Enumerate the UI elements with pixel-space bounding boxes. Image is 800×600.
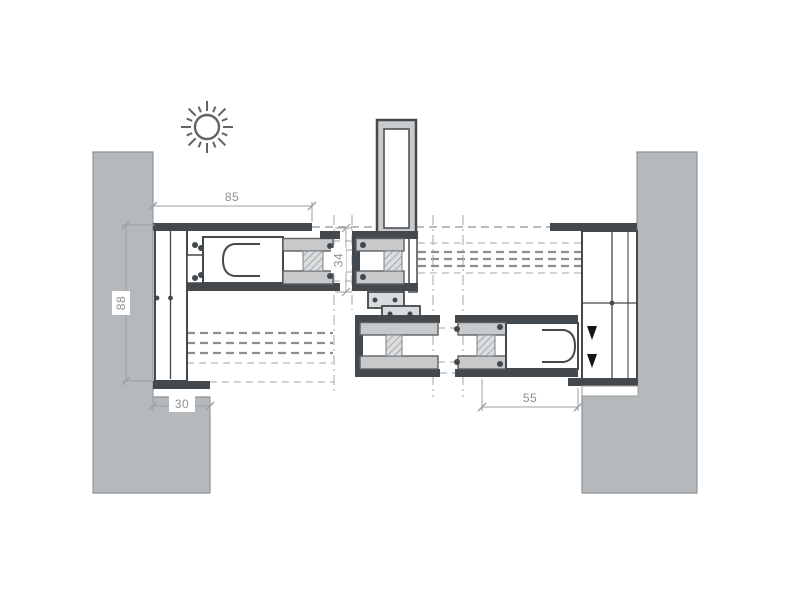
jamb-top-flange (550, 223, 637, 231)
dimension-label-55: 55 (523, 391, 537, 405)
interior-sash-profile (506, 323, 578, 369)
dimension-55: 55 (478, 379, 582, 411)
dimension-85: 85 (149, 190, 316, 222)
technical-drawing: 85 88 30 55 34 (0, 0, 800, 600)
glass-pane (360, 323, 438, 336)
dimension-label-34: 34 (332, 253, 346, 267)
sun-icon (181, 101, 233, 153)
drawing-canvas: 85 88 30 55 34 (0, 0, 800, 600)
jamb-sill-strip (582, 386, 638, 396)
glazing-spacer (303, 251, 323, 271)
glazing-spacer (386, 335, 402, 356)
glazing-spacer (384, 251, 402, 271)
left-wall (93, 152, 210, 493)
interlock-glazing-exterior (352, 231, 418, 291)
glass-pane (360, 356, 438, 369)
dimension-label-85: 85 (225, 190, 239, 204)
glazing-spacer (477, 335, 495, 356)
frame-bottom-flange (153, 381, 210, 389)
dimension-label-88: 88 (114, 296, 128, 310)
glass-pane (283, 239, 333, 252)
interior-glazing-middle (355, 315, 440, 377)
jamb-bottom-flange (568, 378, 637, 386)
dimension-label-30: 30 (175, 397, 189, 411)
glass-pane (283, 271, 333, 284)
frame-top-rail (153, 223, 312, 231)
